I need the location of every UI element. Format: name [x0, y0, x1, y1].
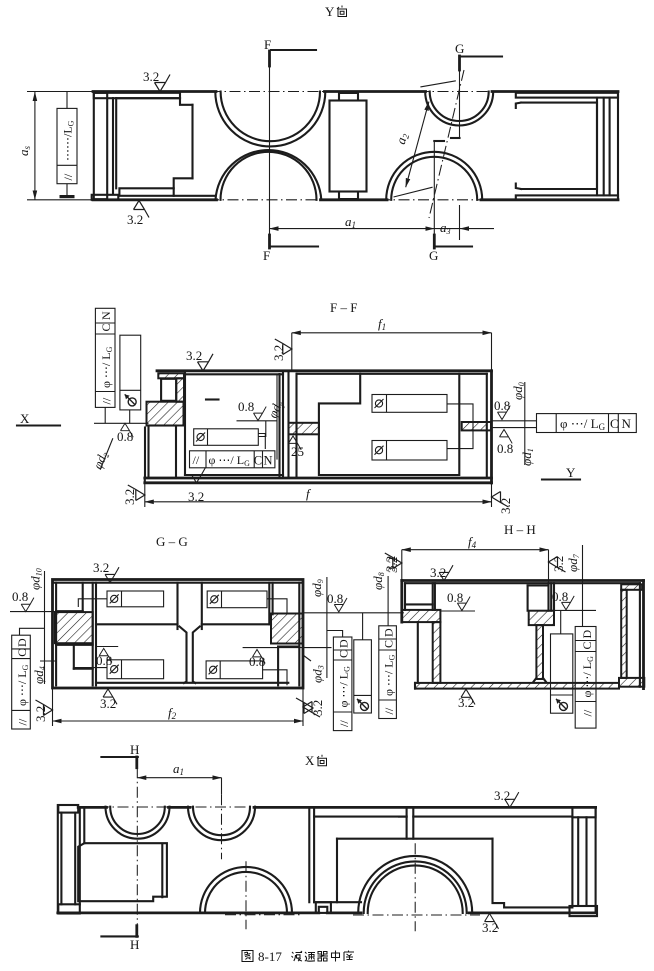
svg-text:φ ⋯/ LG: φ ⋯/ LG: [337, 666, 352, 708]
svg-text:3.2: 3.2: [33, 706, 48, 722]
svg-text:N: N: [264, 454, 273, 468]
svg-text:N: N: [99, 311, 113, 320]
svg-text://: //: [337, 720, 351, 727]
svg-text:3.2: 3.2: [385, 557, 400, 573]
svg-text://: //: [16, 718, 30, 725]
svg-text:D: D: [580, 630, 594, 639]
svg-text://: //: [100, 397, 114, 404]
svg-text:3.2: 3.2: [498, 498, 513, 514]
svg-text:φ ⋯/ LG: φ ⋯/ LG: [99, 346, 114, 388]
svg-text:3.2: 3.2: [271, 345, 286, 361]
svg-text:3.2: 3.2: [458, 695, 474, 710]
svg-text:0.8: 0.8: [497, 441, 513, 456]
svg-text:F: F: [264, 37, 271, 52]
svg-text:C: C: [337, 650, 351, 658]
svg-text:G: G: [429, 248, 438, 263]
svg-text:3.2: 3.2: [186, 348, 202, 363]
svg-text:G: G: [455, 41, 464, 56]
svg-text:⋯⋯/LG: ⋯⋯/LG: [61, 120, 76, 161]
svg-text:D: D: [15, 638, 29, 647]
svg-text:D: D: [382, 628, 396, 637]
svg-text:Y: Y: [325, 4, 335, 19]
svg-text:3.2: 3.2: [482, 920, 498, 935]
svg-text:3.2: 3.2: [100, 696, 116, 711]
svg-text:0.8: 0.8: [96, 653, 112, 668]
svg-text:N: N: [622, 416, 632, 431]
svg-text:φ ⋯/ LG: φ ⋯/ LG: [382, 654, 397, 696]
svg-text:3.2: 3.2: [93, 560, 109, 575]
svg-text:C: C: [610, 416, 619, 431]
svg-text://: //: [382, 707, 396, 714]
svg-text:F – F: F – F: [330, 300, 357, 315]
svg-text:φ ⋯/ LG: φ ⋯/ LG: [15, 664, 30, 706]
svg-text:3.2: 3.2: [551, 556, 566, 572]
svg-text:0.8: 0.8: [327, 591, 343, 606]
svg-text:0.8: 0.8: [447, 590, 463, 605]
svg-text:Y: Y: [566, 465, 576, 480]
svg-text:C: C: [254, 454, 262, 468]
svg-text:H: H: [130, 937, 139, 952]
svg-text:H – H: H – H: [504, 522, 536, 537]
svg-text:0.8: 0.8: [249, 654, 265, 669]
svg-text://: //: [61, 173, 75, 180]
svg-text:C: C: [580, 641, 594, 649]
svg-text:X: X: [305, 753, 315, 768]
svg-text:X: X: [20, 411, 30, 426]
svg-text:0.8: 0.8: [117, 429, 133, 444]
svg-text:8-17: 8-17: [258, 949, 282, 964]
svg-text:3.2: 3.2: [188, 489, 204, 504]
svg-text:G – G: G – G: [156, 534, 188, 549]
svg-text:0.8: 0.8: [494, 398, 510, 413]
svg-text:0.8: 0.8: [238, 399, 254, 414]
svg-text:F: F: [263, 248, 270, 263]
svg-text:3.2: 3.2: [122, 489, 137, 505]
svg-text:C: C: [99, 323, 113, 331]
svg-text:3.2: 3.2: [143, 69, 159, 84]
svg-text:D: D: [337, 639, 351, 648]
svg-text://: //: [581, 709, 595, 716]
svg-text:φ ⋯/ LG: φ ⋯/ LG: [209, 453, 251, 468]
svg-text:0.8: 0.8: [552, 589, 568, 604]
svg-text:3.2: 3.2: [430, 565, 446, 580]
svg-text:C: C: [15, 649, 29, 657]
svg-text:3.2: 3.2: [127, 212, 143, 227]
svg-text:C: C: [382, 640, 396, 648]
svg-text:H: H: [130, 742, 139, 757]
svg-text://: //: [193, 453, 200, 467]
svg-text:25: 25: [291, 444, 304, 459]
svg-text:3.2: 3.2: [494, 788, 510, 803]
svg-text:φ ⋯/ LG: φ ⋯/ LG: [580, 656, 595, 698]
svg-text:0.8: 0.8: [12, 589, 28, 604]
